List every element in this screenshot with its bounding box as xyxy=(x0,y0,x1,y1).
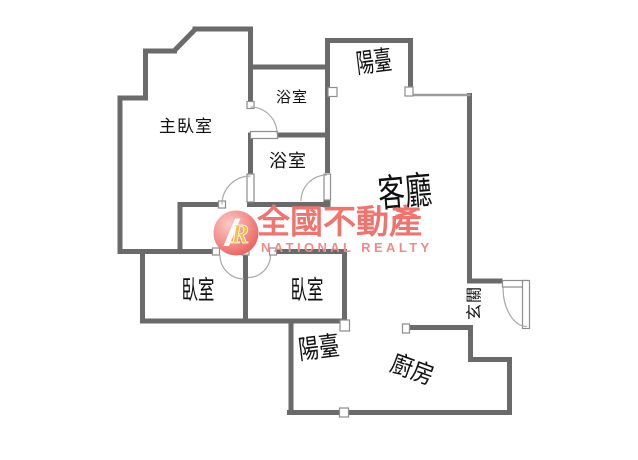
label-foyer: 玄關 xyxy=(468,285,486,322)
leaf-bath-lower-door xyxy=(324,174,331,200)
marker-balcony-top-right xyxy=(405,87,413,96)
label-master-bedroom: 主臥室 xyxy=(159,118,213,135)
jamb-bedroom-right-door xyxy=(270,248,277,255)
marker-bottom-window xyxy=(340,408,349,417)
wall-stub-bath-lower-door xyxy=(324,200,331,208)
label-balcony-bottom: 陽臺 xyxy=(297,333,341,365)
marker-bedroom-balcony-corner xyxy=(340,320,350,331)
floor-plan-drawing xyxy=(0,0,638,460)
jamb-balcony-opening xyxy=(403,324,410,333)
arc-bath-lower-door xyxy=(301,175,327,201)
leaf-entry-door xyxy=(523,281,530,329)
jamb-bedrooms-divider xyxy=(242,248,249,255)
label-bedroom-right: 臥室 xyxy=(291,277,324,303)
label-living-room: 客廳 xyxy=(376,172,433,215)
arc-bedroom-right-door xyxy=(248,255,271,278)
label-bathroom-lower: 浴室 xyxy=(269,152,307,170)
door-jambs xyxy=(213,87,530,417)
marker-balcony-top-left xyxy=(328,88,337,97)
leaf-master-door xyxy=(247,174,254,202)
label-bedroom-left: 臥室 xyxy=(182,277,215,303)
arc-master-door xyxy=(222,176,251,205)
wall-master-diagonal xyxy=(175,28,197,50)
leaf-bath-upper-door xyxy=(251,132,278,139)
jamb-bedroom-left-door xyxy=(213,248,220,255)
label-bathroom-upper: 浴室 xyxy=(276,90,308,105)
arc-bedroom-left-door xyxy=(220,255,244,279)
arc-bath-upper-door xyxy=(251,107,278,134)
label-balcony-top: 陽臺 xyxy=(355,47,394,78)
floor-plan: 主臥室 浴室 浴室 陽臺 客廳 臥室 臥室 陽臺 廚房 玄關 R 全國不動產 N… xyxy=(0,0,638,460)
